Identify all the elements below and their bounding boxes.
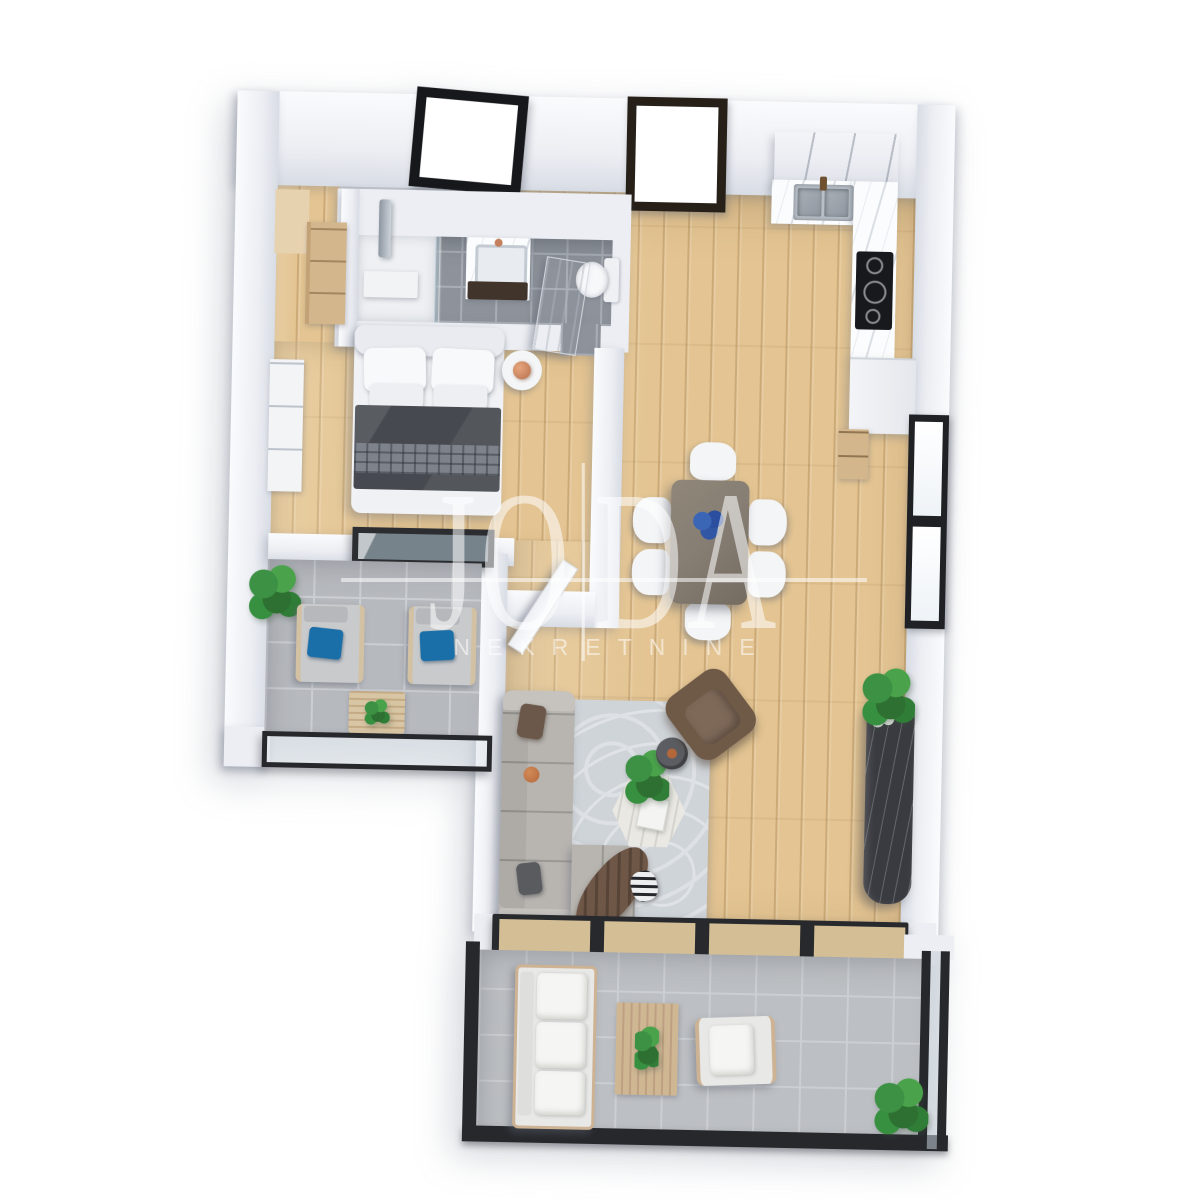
wall-bedroom-living [589,348,625,629]
armchair-cushion [681,685,744,748]
nightstand-lamp [513,361,531,379]
console-plant [861,666,916,731]
dining-chair-top [690,442,737,481]
sink-basin-right [824,189,849,217]
terrace-armchair [695,1016,777,1086]
kitchen-tall-cabinet [849,357,917,434]
wardrobe-shelves [305,222,347,325]
window-pane-bottom [911,527,941,622]
terrace-sofa-cushion-3 [534,1071,585,1116]
sofa-pillow-brown [516,703,547,741]
sink-basin-left [797,188,822,216]
dining-chair-right-1 [748,499,787,546]
kitchen-wood-cabinet [838,429,869,480]
window-pane-top [913,422,943,517]
entry-door [625,96,727,212]
kitchen-sink [793,184,854,221]
bed-blanket-plaid-band [354,443,501,476]
slider-glass [358,533,489,562]
floorplan-render: JO DA NEKRETNINE [0,0,1200,1200]
lounge-back-cushion [416,608,460,625]
sink-faucet [820,177,827,191]
balcony-coffee-table [348,691,405,734]
apartment-plan [0,0,1200,1200]
bathroom-vanity [465,237,530,300]
lounge-back-cushion [304,606,348,623]
table-flower-centerpiece [690,508,727,543]
side-table-decor [667,748,677,758]
terrace-sofa-cushion-1 [536,973,587,1020]
bed-blanket [353,405,501,492]
balcony-lounge-chair-1 [295,604,365,683]
dining-chair-left-1 [632,497,671,544]
terrace-armchair-cushion [709,1024,755,1075]
window-east [905,414,949,629]
shower-bench [363,271,418,298]
balcony-railing [262,731,493,772]
lounge-blue-pillow [419,630,454,662]
kitchen-cooktop [855,251,894,330]
dining-chair-left-2 [631,549,670,596]
terrace-plant [872,1076,929,1139]
kitchen-wall-cabinets [774,132,899,187]
dining-chair-right-2 [747,551,786,598]
terrace-sofa [512,964,597,1130]
balcony-plant [247,563,302,624]
dining-table [669,479,750,605]
vanity-cabinet [467,281,527,300]
terrace-sofa-back [517,971,534,1115]
terrace-table-plant [634,1023,659,1075]
closet-wall-face [274,189,309,254]
dining-chair-bottom [684,602,731,641]
vanity-sink [475,244,528,285]
sofa-pillow-grey [516,861,544,896]
dresser [267,359,304,492]
balcony-lounge-chair-2 [407,606,477,685]
terrace-sofa-cushion-2 [535,1022,586,1069]
terrace-coffee-table [615,1002,679,1095]
shower-fixture [378,199,391,257]
skylight-window [408,86,529,196]
lounge-blue-pillow [307,627,344,660]
bed-footboard [355,489,497,512]
bed [351,325,505,516]
balcony-table-plant [363,698,390,727]
